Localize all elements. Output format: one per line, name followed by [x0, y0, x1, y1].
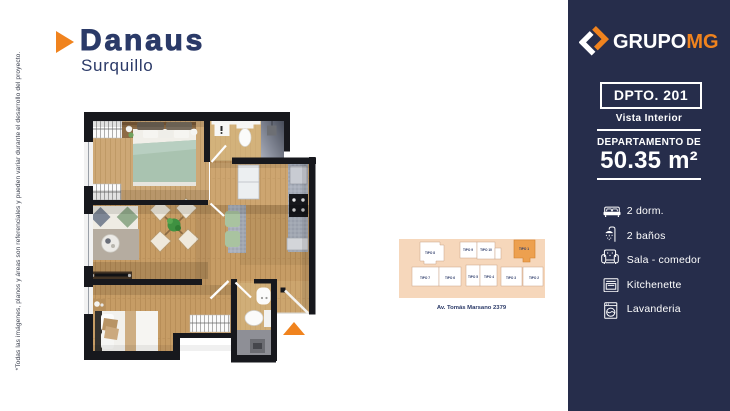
- svg-text:TIPO 2: TIPO 2: [529, 276, 539, 280]
- svg-text:TIPO 4: TIPO 4: [484, 275, 494, 279]
- svg-text:TIPO 1: TIPO 1: [519, 247, 529, 251]
- svg-text:TIPO 9: TIPO 9: [463, 248, 473, 252]
- svg-text:TIPO 3: TIPO 3: [506, 276, 516, 280]
- svg-text:TIPO 10: TIPO 10: [480, 248, 492, 252]
- svg-text:TIPO 7: TIPO 7: [420, 276, 430, 280]
- svg-text:TIPO 6: TIPO 6: [445, 276, 455, 280]
- svg-text:TIPO 5: TIPO 5: [468, 275, 478, 279]
- svg-text:TIPO 8: TIPO 8: [425, 251, 435, 255]
